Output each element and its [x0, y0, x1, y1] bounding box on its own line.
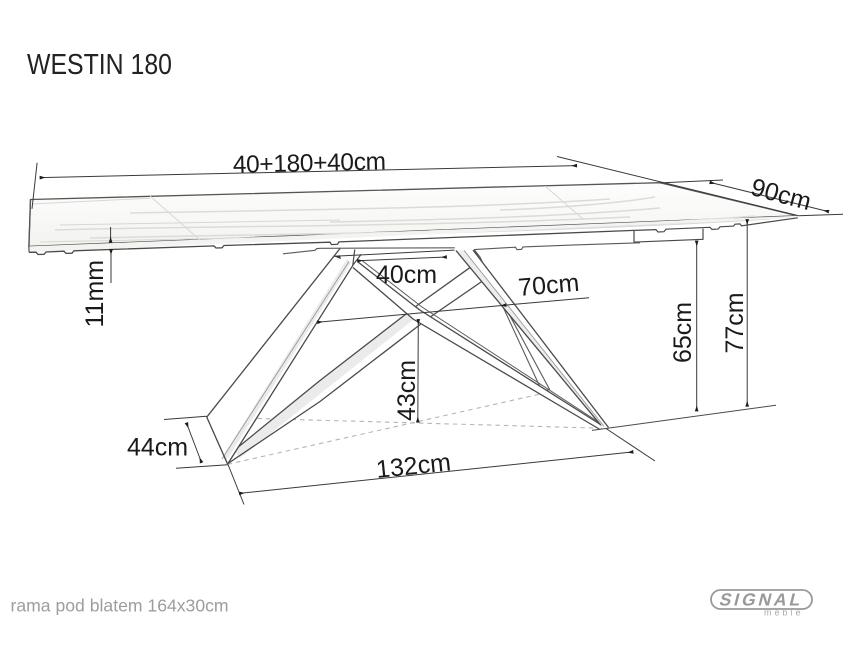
svg-text:77cm: 77cm	[721, 292, 749, 353]
svg-text:11mm: 11mm	[81, 260, 109, 328]
svg-text:rama pod blatem 164x30cm: rama pod blatem 164x30cm	[11, 596, 229, 616]
svg-text:SIGNAL: SIGNAL	[718, 590, 806, 610]
svg-text:WESTIN 180: WESTIN 180	[27, 48, 172, 80]
svg-text:40+180+40cm: 40+180+40cm	[233, 148, 386, 178]
svg-text:43cm: 43cm	[393, 360, 421, 421]
svg-text:70cm: 70cm	[517, 269, 580, 302]
svg-text:40cm: 40cm	[376, 261, 437, 289]
svg-text:44cm: 44cm	[127, 434, 188, 462]
svg-text:meble: meble	[764, 608, 804, 618]
svg-text:65cm: 65cm	[669, 302, 697, 363]
